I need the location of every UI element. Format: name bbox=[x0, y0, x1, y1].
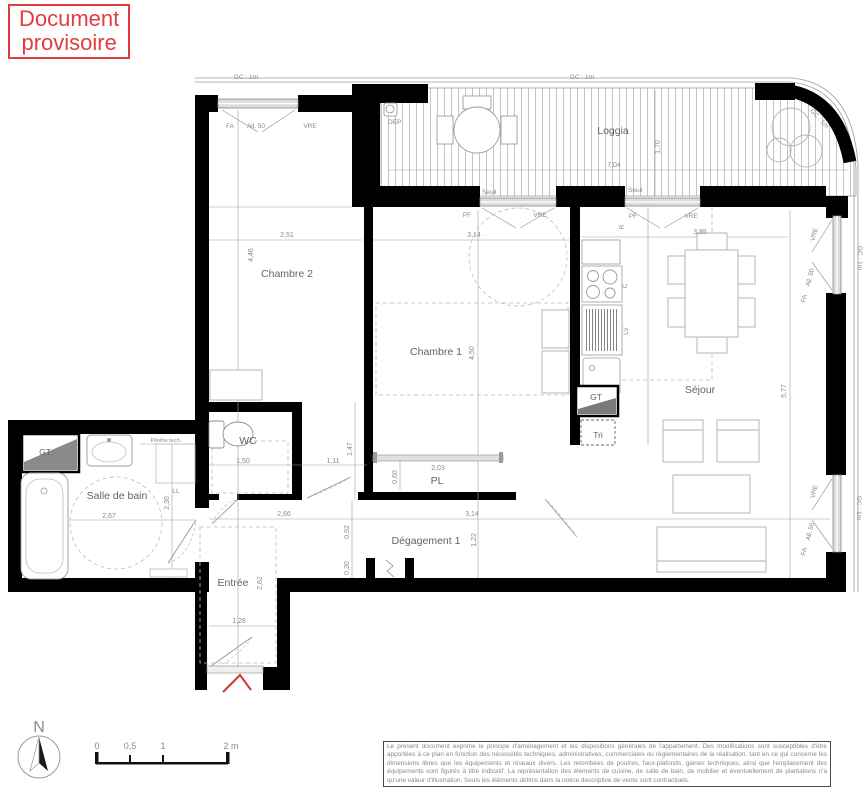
wall-segment bbox=[285, 578, 846, 592]
label-vre-east1: VRE bbox=[810, 227, 820, 242]
wall-segment bbox=[195, 592, 207, 690]
wall-segment bbox=[556, 186, 625, 207]
label-gt-sdb: GT bbox=[39, 447, 51, 457]
bath-mat bbox=[150, 569, 187, 577]
wall-segment bbox=[298, 95, 354, 112]
wall-segment bbox=[237, 494, 302, 500]
stamp-line-2: provisoire bbox=[19, 31, 119, 55]
wall-segment bbox=[364, 207, 373, 500]
closet-rod-end bbox=[373, 452, 377, 463]
wall-segment bbox=[209, 494, 219, 500]
loggia-round-table bbox=[454, 107, 500, 153]
sejour-furniture bbox=[657, 233, 766, 572]
floor-plan-page: Loggia Chambre 2 Chambre 1 Séjour WC Sal… bbox=[0, 0, 868, 800]
wall-segment bbox=[277, 578, 290, 690]
dim-060: 0,60 bbox=[392, 470, 399, 484]
closet-rod bbox=[373, 455, 503, 461]
label-gc-top-right: GC : 1m bbox=[570, 74, 594, 81]
kitchen bbox=[576, 240, 622, 445]
wall-segment bbox=[8, 420, 22, 592]
scale-label-1: 1 bbox=[160, 741, 165, 751]
dim-111: 1,11 bbox=[326, 458, 339, 465]
fridge bbox=[582, 240, 620, 264]
dim-267: 2,67 bbox=[102, 513, 116, 520]
dim-577: 5,77 bbox=[781, 384, 788, 398]
label-gt-kitchen: GT bbox=[590, 392, 602, 402]
dim-122: 1,22 bbox=[471, 533, 478, 547]
duct-symbol bbox=[386, 560, 394, 577]
room-label-chambre2: Chambre 2 bbox=[261, 268, 313, 280]
stamp-line-1: Document bbox=[19, 7, 119, 31]
label-dishwasher: LV bbox=[623, 327, 630, 335]
wall-segment bbox=[826, 196, 848, 218]
room-label-sejour: Séjour bbox=[685, 384, 716, 396]
wall-segment bbox=[263, 667, 277, 690]
wall-niche-jamb bbox=[366, 558, 375, 578]
nightstand bbox=[542, 351, 569, 393]
scale-tick bbox=[162, 755, 164, 764]
wall-segment bbox=[195, 95, 209, 425]
turning-circle-chambre1 bbox=[469, 208, 567, 306]
door-leaf-entree bbox=[207, 637, 252, 669]
room-label-entree: Entrée bbox=[218, 577, 249, 589]
entrance-threshold bbox=[207, 666, 263, 673]
closet-rod-end bbox=[499, 452, 503, 463]
compass-needle-dark bbox=[39, 737, 48, 771]
north-label: N bbox=[33, 719, 45, 736]
label-plinthe: Plinthe tech. bbox=[151, 438, 182, 444]
scale-bar: 0 0,5 1 2 m bbox=[94, 741, 238, 765]
washing-machine-slot bbox=[156, 444, 195, 483]
label-seuil-1: Seuil bbox=[482, 189, 497, 196]
dim-147: 1,47 bbox=[347, 442, 354, 456]
label-vre-sejour: VRE bbox=[684, 213, 698, 220]
label-all50-chambre2: All. 50 bbox=[247, 123, 265, 130]
washbasin-faucet bbox=[107, 438, 111, 442]
bathtub bbox=[21, 473, 68, 579]
label-dep: DEP bbox=[388, 119, 401, 126]
label-pf-sejour: PF bbox=[629, 213, 637, 220]
door-leaf-sejour bbox=[545, 499, 577, 537]
wall-segment bbox=[358, 492, 516, 500]
wall-segment bbox=[826, 293, 846, 475]
wall-segment bbox=[8, 420, 209, 434]
provisional-stamp: Document provisoire bbox=[8, 4, 130, 59]
dining-chair bbox=[738, 298, 755, 327]
entrance-arrow bbox=[223, 675, 251, 692]
dim-150: 1,50 bbox=[236, 458, 250, 465]
wall-segment bbox=[700, 186, 826, 207]
scale-endcap bbox=[226, 752, 230, 764]
room-label-sdb: Salle de bain bbox=[87, 490, 148, 502]
north-arrow: N bbox=[18, 719, 60, 778]
legal-notice: Le présent document exprime le principe … bbox=[383, 741, 831, 787]
label-cooktop: C bbox=[622, 283, 629, 288]
dim-262: 2,62 bbox=[257, 576, 264, 590]
armchair bbox=[717, 420, 759, 462]
wall-segment bbox=[755, 83, 795, 100]
room-label-degagement: Dégagement 1 bbox=[392, 535, 461, 547]
scale-label-2m: 2 m bbox=[223, 741, 238, 751]
dim-446: 4,46 bbox=[248, 248, 255, 262]
label-fa-east1: FA bbox=[800, 293, 809, 303]
coffee-table bbox=[673, 475, 750, 513]
compass-needle-light bbox=[30, 737, 39, 771]
dining-chair bbox=[668, 256, 685, 284]
armchair bbox=[663, 420, 703, 462]
loggia-chair-left bbox=[437, 116, 453, 144]
label-gc-east-2: GC : 1m bbox=[855, 496, 862, 520]
toilet-tank bbox=[209, 421, 224, 448]
dim-314b: 3,14 bbox=[465, 511, 479, 518]
closet-pl bbox=[373, 452, 503, 463]
label-seuil-2: Seuil bbox=[628, 187, 643, 194]
wall-segment bbox=[292, 402, 302, 500]
floor-plan-drawing: Loggia Chambre 2 Chambre 1 Séjour WC Sal… bbox=[0, 0, 868, 800]
room-label-chambre1: Chambre 1 bbox=[410, 346, 462, 358]
bedroom-furniture bbox=[210, 310, 569, 400]
dim-030: 0,30 bbox=[344, 561, 351, 575]
dim-704: 7,04 bbox=[607, 162, 621, 169]
door-leaf-wc bbox=[212, 500, 237, 524]
label-all50-east1: All. 50 bbox=[805, 268, 816, 288]
wall-niche-jamb bbox=[405, 558, 414, 578]
label-vre-east2: VRE bbox=[810, 484, 820, 499]
scale-tick bbox=[129, 755, 131, 764]
nightstand bbox=[542, 310, 569, 348]
dresser-chambre2 bbox=[210, 370, 262, 400]
room-label-tri: Tri bbox=[593, 430, 603, 440]
dim-128: 1,28 bbox=[232, 618, 246, 625]
label-vre-chambre2: VRE bbox=[303, 123, 317, 130]
wall-segment bbox=[352, 186, 480, 207]
dining-chair bbox=[738, 256, 755, 284]
label-vre-chambre1: VRE bbox=[533, 212, 547, 219]
label-gc-east-1: GC : 1m bbox=[856, 246, 863, 270]
dining-chair bbox=[668, 298, 685, 327]
wall-segment bbox=[195, 420, 209, 508]
dim-314a: 3,14 bbox=[467, 232, 481, 239]
door-leaf-chambre1 bbox=[307, 477, 351, 498]
scale-label-05: 0,5 bbox=[124, 741, 137, 751]
dim-230: 2,30 bbox=[164, 496, 171, 510]
dishwasher-hatch bbox=[586, 309, 618, 351]
scale-label-0: 0 bbox=[94, 741, 99, 751]
room-label-wc: WC bbox=[239, 435, 257, 447]
dim-251: 2,51 bbox=[280, 232, 294, 239]
room-label-loggia: Loggia bbox=[597, 125, 629, 137]
dep-fixture bbox=[384, 103, 397, 116]
dining-chair bbox=[697, 337, 727, 353]
dim-170: 1,70 bbox=[655, 140, 662, 154]
dim-266: 2,66 bbox=[277, 511, 291, 518]
dining-table bbox=[685, 250, 738, 337]
label-fa-east2: FA bbox=[800, 546, 809, 556]
scale-endcap bbox=[95, 752, 99, 764]
dim-092: 0,92 bbox=[344, 525, 351, 539]
label-all50-east2: All. 50 bbox=[805, 522, 816, 542]
wall-segment bbox=[8, 578, 209, 592]
loggia-chair-right bbox=[501, 116, 517, 144]
dim-203: 2,03 bbox=[431, 465, 445, 472]
wall-segment bbox=[195, 562, 209, 592]
label-fridge: R bbox=[619, 224, 626, 229]
label-washing-machine: LL bbox=[172, 488, 180, 495]
label-fa-chambre2: FA bbox=[226, 123, 235, 130]
label-pf-chambre1: PF bbox=[463, 212, 471, 219]
dim-450: 4,50 bbox=[469, 346, 476, 360]
room-label-pl: PL bbox=[431, 475, 444, 487]
wall-segment bbox=[209, 402, 302, 412]
label-gc-top-left: GC : 1m bbox=[234, 74, 258, 81]
sofa bbox=[657, 527, 766, 572]
dim-385: 3,85 bbox=[693, 229, 707, 236]
dashed-zone-wc bbox=[212, 441, 288, 493]
